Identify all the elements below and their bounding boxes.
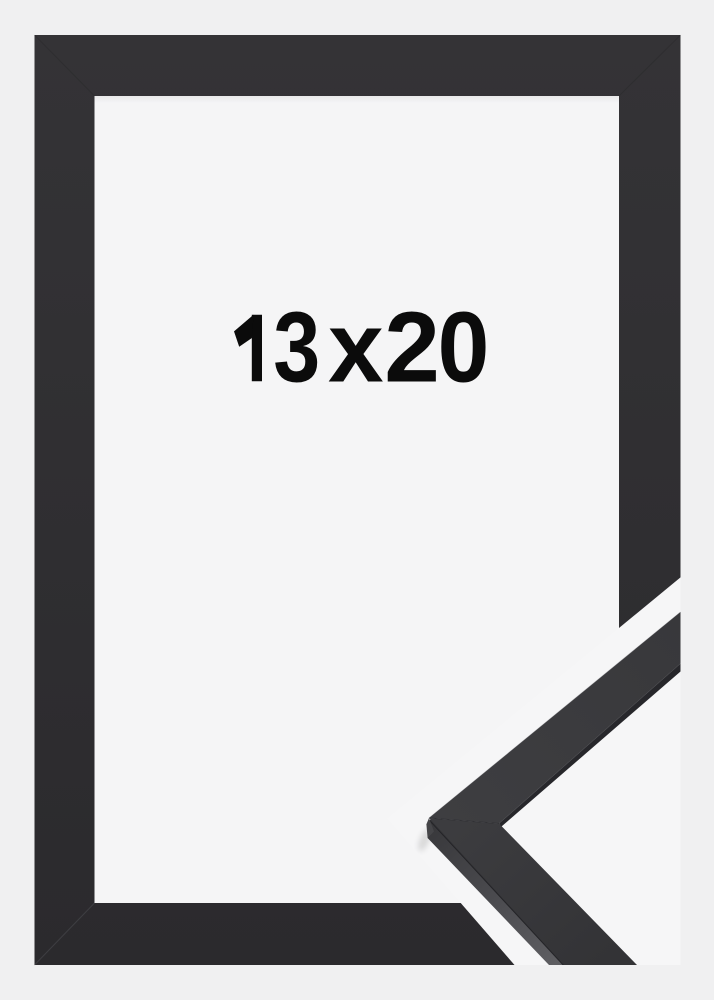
svg-text:3: 3 (273, 291, 320, 403)
svg-text:0: 0 (438, 292, 490, 403)
svg-text:x: x (328, 292, 384, 404)
svg-text:2: 2 (384, 292, 440, 404)
